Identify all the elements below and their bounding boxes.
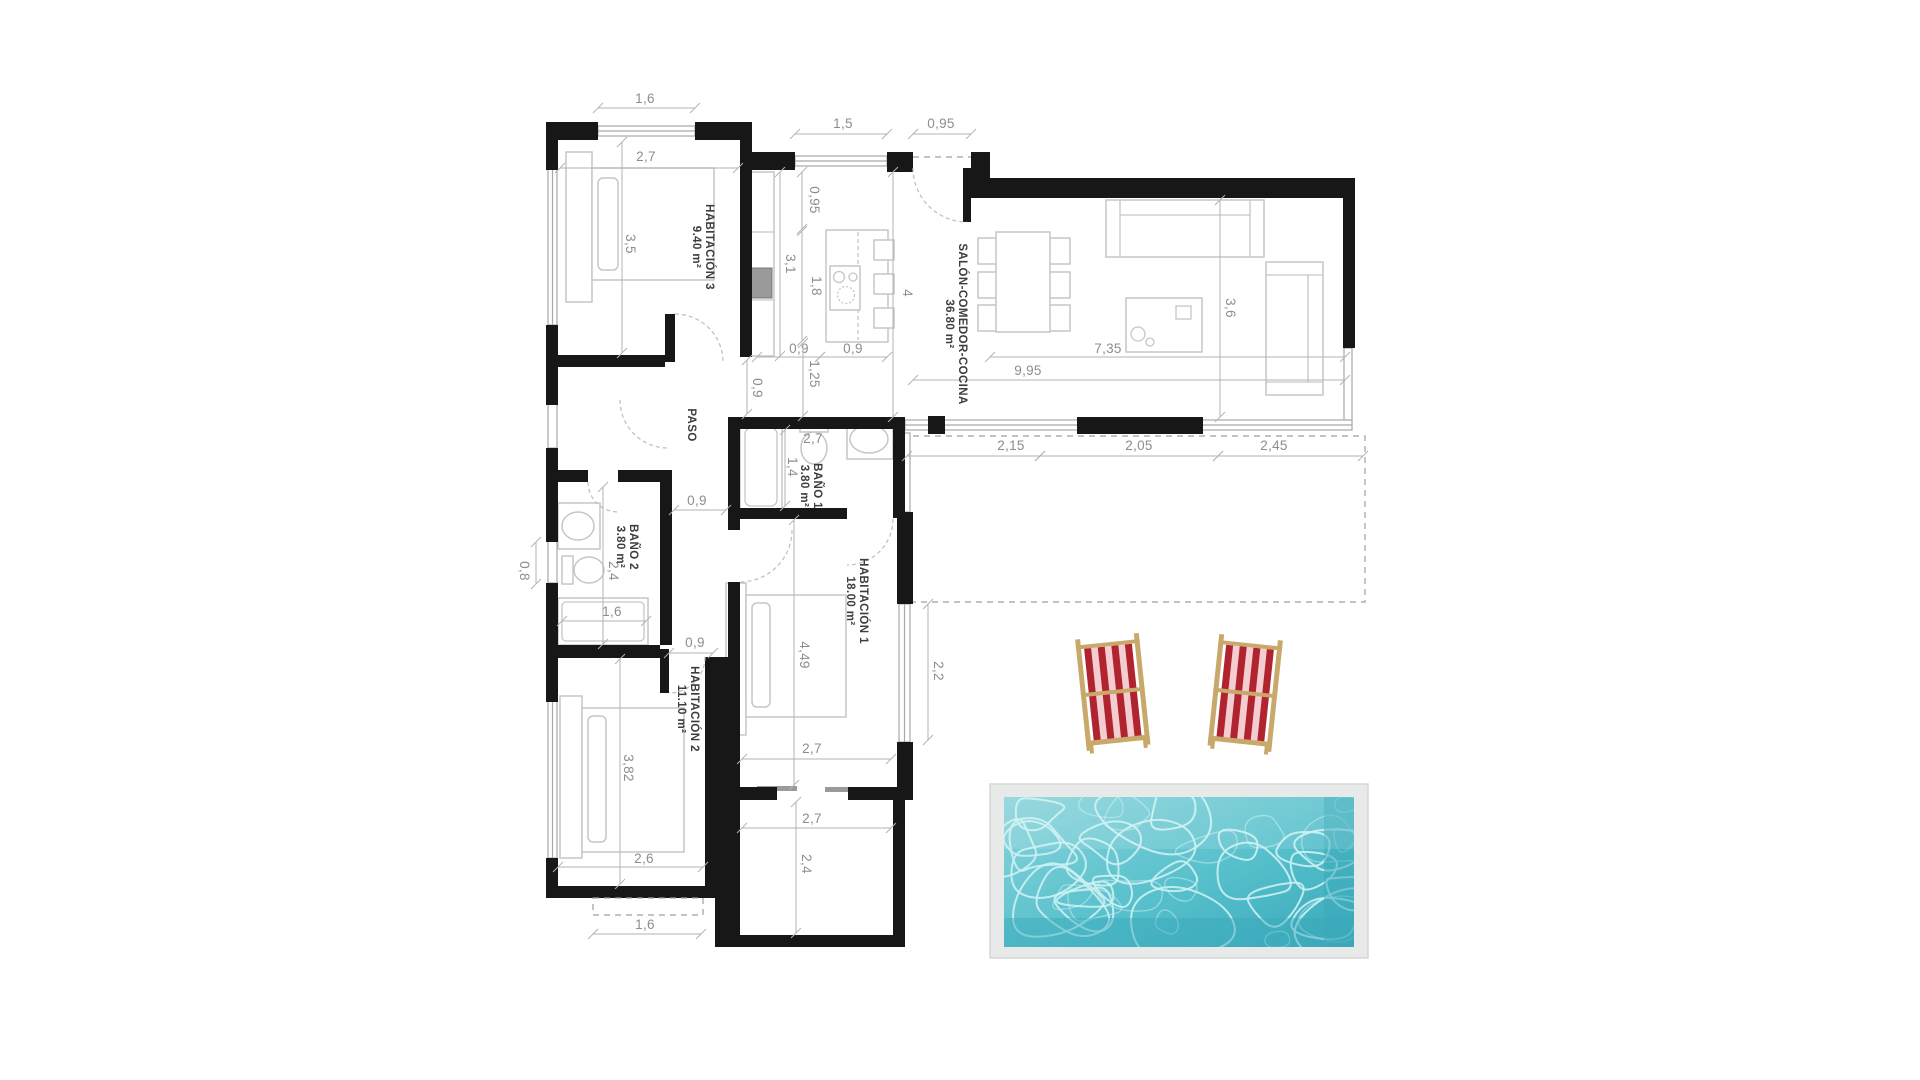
dimension: 1,6 (588, 917, 706, 939)
dimension: 0,9 (742, 355, 765, 419)
dimension-label: 2,15 (997, 438, 1024, 453)
window (548, 540, 557, 583)
dimension: 2,7 (803, 431, 823, 446)
dimension: 1,8 (797, 226, 824, 346)
dimension-label: 0,9 (687, 493, 707, 508)
window (795, 156, 887, 166)
dimension: 2,45 (1213, 438, 1368, 461)
dimension-label: 3,1 (783, 254, 798, 274)
floor-plan: 1,62,73,51,50,950,953,11,840,90,91,250,9… (0, 0, 1920, 1080)
porch-outline (593, 898, 703, 915)
dimension: 0,9 (664, 635, 718, 658)
dimension-label: 4 (900, 289, 915, 297)
dimension-label: 2,7 (636, 149, 656, 164)
dimension-label: 4,49 (797, 641, 812, 668)
deck-chairs (1075, 633, 1283, 755)
window (548, 403, 557, 448)
bar-stool (874, 274, 894, 294)
floorplan-canvas: 1,62,73,51,50,950,953,11,840,90,91,250,9… (0, 0, 1920, 1080)
dimension-label: 1,5 (833, 116, 853, 131)
dimension: 1,6 (593, 91, 700, 113)
dimension-label: 1,25 (807, 360, 822, 387)
dimension-label: 3,5 (623, 234, 638, 254)
window (899, 604, 910, 742)
entry-door-arc (913, 168, 967, 222)
dimension-label: 1,6 (602, 604, 622, 619)
bar-stool (874, 240, 894, 260)
dimension-label: 0,9 (750, 378, 765, 398)
kitchen-island (826, 230, 894, 342)
dimension-label: 9,95 (1014, 363, 1041, 378)
dimension-label: 1,8 (809, 276, 824, 296)
dimension-label: 7,35 (1094, 341, 1121, 356)
dimension-label: 2,05 (1125, 438, 1152, 453)
window (548, 700, 557, 858)
glass-wall-salon-east (1344, 348, 1352, 420)
deck-chair-right (1207, 634, 1283, 755)
room-label: PASO (685, 408, 697, 441)
dimension: 2,05 (1035, 438, 1223, 461)
dimension-label: 0,9 (685, 635, 705, 650)
dimension-label: 2,45 (1260, 438, 1287, 453)
dimension: 0,95 (797, 167, 822, 234)
dimension-label: 1,6 (635, 917, 655, 932)
dimension: 0,8 (517, 537, 541, 589)
door-leaf (665, 314, 675, 362)
room-label: HABITACIÓN 118.00 m² (844, 558, 870, 644)
bed-habitacion1 (726, 583, 846, 735)
dimension-label: 0,8 (517, 561, 532, 581)
room-label: BAÑO 13.80 m² (798, 463, 824, 509)
dimension-label: 2,6 (634, 851, 654, 866)
dimension: 1,5 (790, 116, 892, 139)
deck-chair-left (1075, 633, 1151, 754)
dimension-label: 0,9 (843, 341, 863, 356)
dimension: 0,95 (908, 116, 976, 139)
terrace-outline (913, 436, 1365, 602)
pool (974, 784, 1387, 958)
dimension: 0,9 (669, 493, 731, 515)
cooktop (830, 266, 860, 310)
dimension-label: 2,4 (799, 854, 814, 874)
dimension-label: 2,7 (802, 811, 822, 826)
dimension: 2,15 (902, 438, 1045, 461)
dimension: 2,2 (923, 599, 946, 745)
dimension-label: 0,9 (789, 341, 809, 356)
window (598, 126, 695, 136)
dimension: 2,7 (737, 741, 896, 764)
furniture-layer (558, 152, 1323, 858)
dimension: 1,4 (780, 425, 800, 511)
door-arc (740, 530, 792, 582)
room-label: BAÑO 23.80 m² (614, 524, 640, 570)
door-arc (847, 519, 893, 565)
door-arc (675, 314, 723, 362)
bar-stool (874, 308, 894, 328)
dimension: 3,1 (775, 167, 798, 361)
door-arc (620, 400, 668, 448)
dimension-label: 3,6 (1223, 298, 1238, 318)
dimension: 2,7 (737, 811, 896, 833)
dimension-label: 2,7 (803, 431, 823, 446)
dimension-label: 2,2 (931, 661, 946, 681)
dimension-label: 1,4 (785, 457, 800, 477)
living-set (1106, 200, 1323, 395)
dimension-label: 3,82 (621, 754, 636, 781)
door-leaf (660, 649, 669, 693)
dimension-label: 0,95 (807, 186, 822, 213)
dimension-label: 2,7 (802, 741, 822, 756)
dining-set (978, 232, 1070, 332)
dimension-label: 1,6 (635, 91, 655, 106)
dimension-label: 0,95 (927, 116, 954, 131)
dimension: 0,9 (815, 341, 892, 362)
entry-door-leaf (963, 168, 971, 222)
window (548, 168, 557, 325)
